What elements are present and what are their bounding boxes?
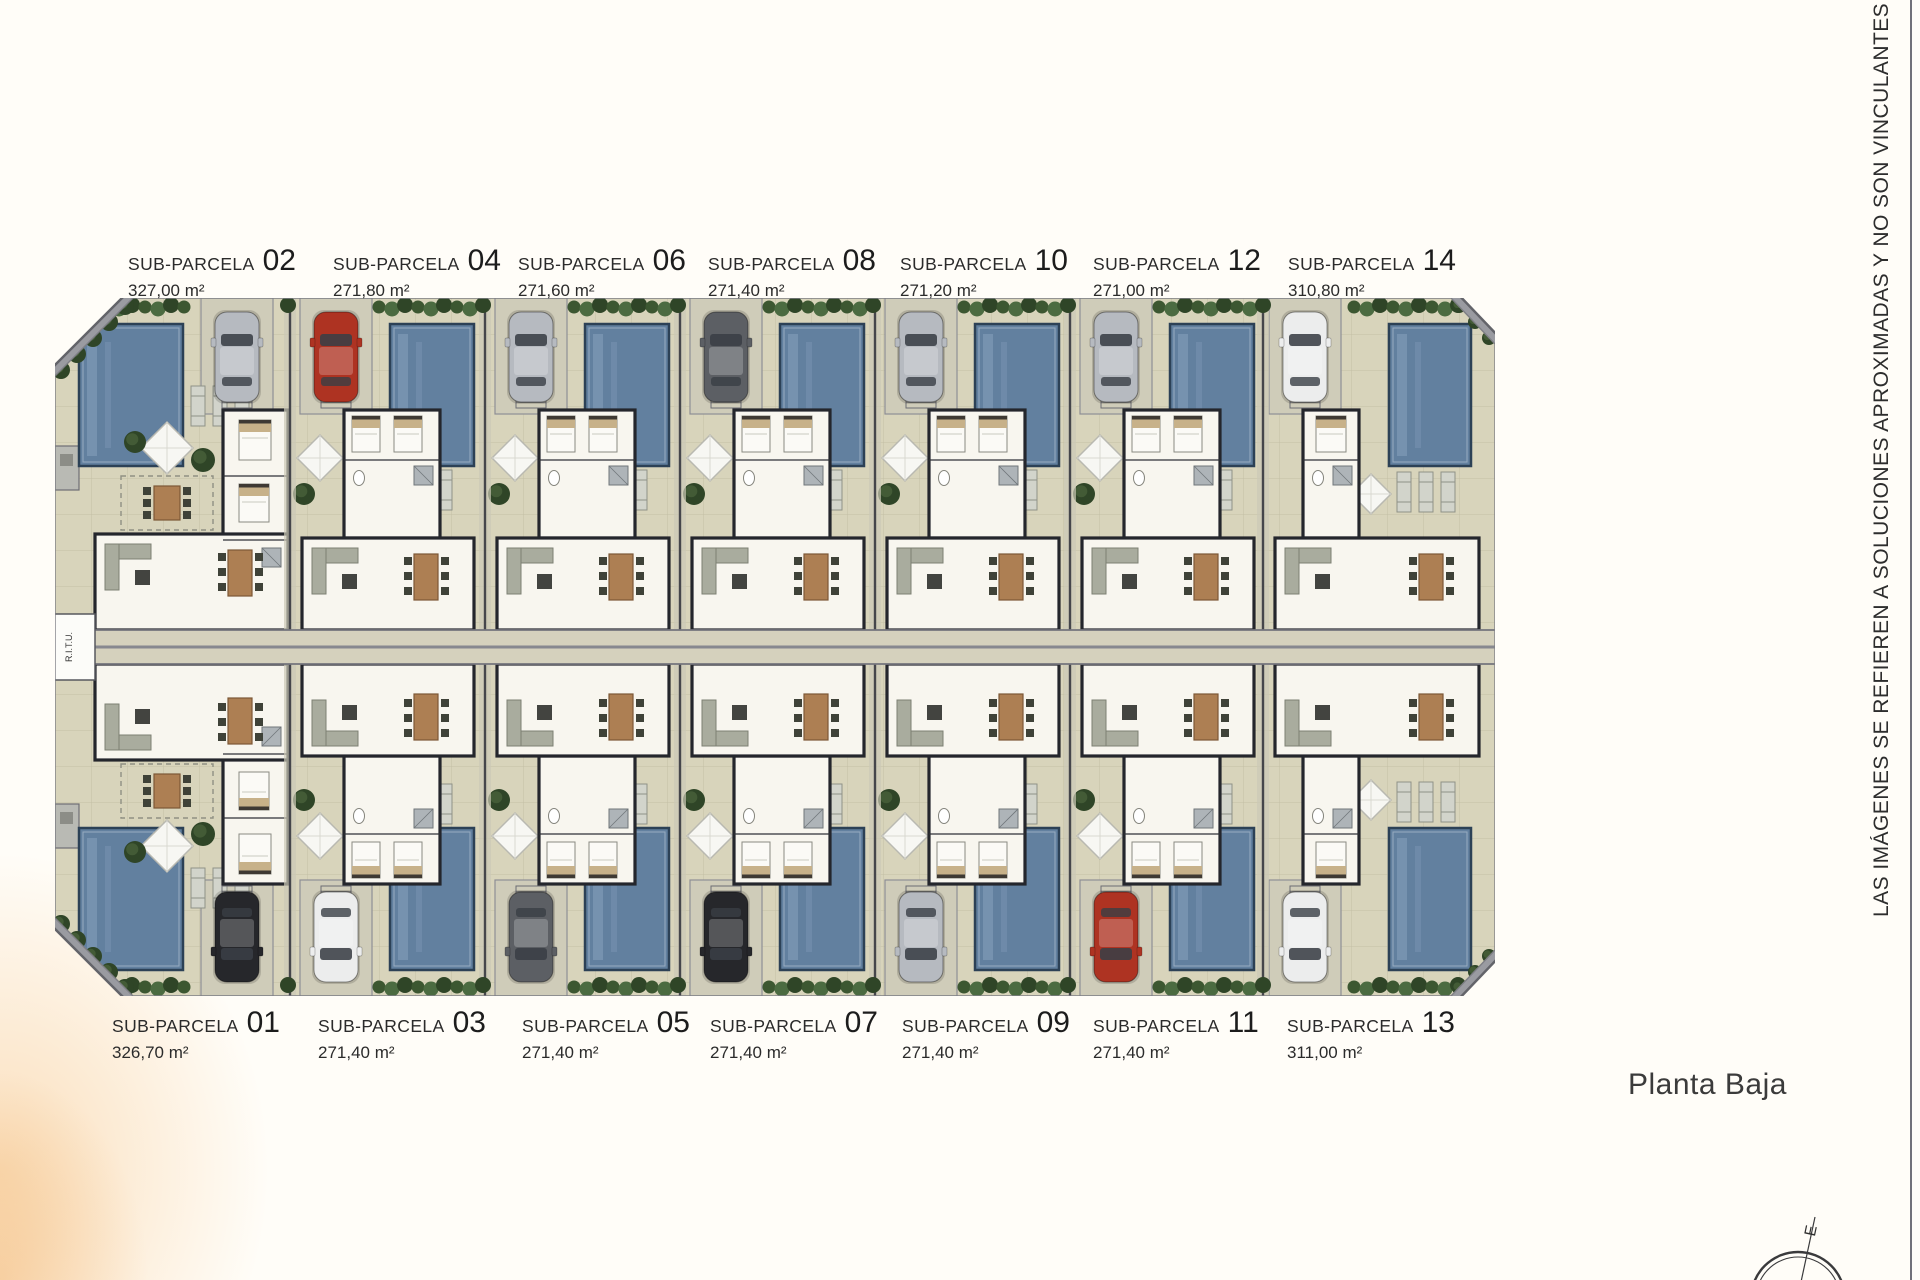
sun-lounger: [191, 386, 205, 426]
hedge-icon: [1231, 301, 1244, 314]
parcel-label-12: SUB-PARCELA12271,00 m²: [1093, 246, 1261, 301]
hedge-icon: [1021, 977, 1037, 993]
sub-parcela-area: 327,00 m²: [128, 281, 296, 301]
dining-table: [999, 694, 1023, 740]
coffee-table: [1122, 705, 1137, 720]
dining-table: [228, 698, 252, 744]
coffee-table: [927, 705, 942, 720]
toilet-icon: [744, 471, 755, 486]
toilet-icon: [744, 809, 755, 824]
coffee-table: [537, 705, 552, 720]
dining-table: [999, 554, 1023, 600]
hedge-icon: [85, 298, 101, 313]
sub-parcela-area: 271,40 m²: [1093, 1043, 1259, 1063]
hedge-icon: [631, 977, 647, 993]
car-icon: [700, 890, 752, 984]
toilet-icon: [1134, 471, 1145, 486]
toilet-icon: [354, 471, 365, 486]
hedge-icon: [163, 977, 179, 993]
hedge-icon: [280, 977, 296, 993]
sub-parcela-name: SUB-PARCELA: [1093, 254, 1220, 274]
sub-parcela-area: 271,40 m²: [710, 1043, 878, 1063]
coffee-table: [927, 574, 942, 589]
parcel-label-02: SUB-PARCELA02327,00 m²: [128, 246, 296, 301]
dining-table: [804, 554, 828, 600]
hedge-icon: [802, 981, 815, 994]
hedge-icon: [61, 981, 74, 994]
hedge-icon: [1255, 977, 1271, 993]
hedge-icon: [1192, 981, 1205, 994]
dining-table: [1419, 694, 1443, 740]
car-icon: [505, 890, 557, 984]
sub-parcela-number: 12: [1228, 244, 1261, 277]
hedge-icon: [1387, 981, 1400, 994]
hedge-icon: [1153, 981, 1166, 994]
toilet-icon: [549, 809, 560, 824]
parcel-label-06: SUB-PARCELA06271,60 m²: [518, 246, 686, 301]
parcel-label-13: SUB-PARCELA13311,00 m²: [1287, 1008, 1455, 1063]
toilet-icon: [939, 809, 950, 824]
disclaimer-text: LAS IMÁGENES SE REFIEREN A SOLUCIONES AP…: [1870, 0, 1894, 917]
parcel-label-01: SUB-PARCELA01326,70 m²: [112, 1008, 280, 1063]
hedge-icon: [997, 301, 1010, 314]
sun-lounger: [1397, 782, 1411, 822]
sub-parcela-name: SUB-PARCELA: [128, 254, 255, 274]
coffee-table: [1315, 574, 1330, 589]
car-icon: [1279, 310, 1331, 404]
car-icon: [310, 310, 362, 404]
hedge-icon: [139, 981, 152, 994]
ritu-label: R.I.T.U.: [64, 632, 74, 662]
hedge-icon: [373, 981, 386, 994]
toilet-icon: [1313, 471, 1324, 486]
hedge-icon: [646, 981, 659, 994]
hedge-icon: [436, 977, 452, 993]
sub-parcela-name: SUB-PARCELA: [112, 1016, 239, 1036]
hedge-icon: [412, 301, 425, 314]
hedge-icon: [592, 977, 608, 993]
sub-parcela-name: SUB-PARCELA: [522, 1016, 649, 1036]
sub-parcela-number: 01: [247, 1006, 280, 1039]
hedge-icon: [1153, 301, 1166, 314]
sub-parcela-area: 271,80 m²: [333, 281, 501, 301]
sub-parcela-name: SUB-PARCELA: [1287, 1016, 1414, 1036]
car-icon: [211, 890, 263, 984]
parcel-label-09: SUB-PARCELA09271,40 m²: [902, 1008, 1070, 1063]
coffee-table: [537, 574, 552, 589]
utility-cabinet: [55, 804, 79, 848]
parcel-unit-01: [79, 664, 288, 996]
hedge-icon: [61, 301, 74, 314]
sub-parcela-number: 06: [653, 244, 686, 277]
hedge-icon: [1348, 301, 1361, 314]
sub-parcela-name: SUB-PARCELA: [710, 1016, 837, 1036]
sub-parcela-number: 14: [1423, 244, 1456, 277]
dining-table: [609, 554, 633, 600]
sub-parcela-number: 04: [468, 244, 501, 277]
sun-lounger: [191, 868, 205, 908]
toilet-icon: [1134, 809, 1145, 824]
hedge-icon: [373, 301, 386, 314]
hedge-icon: [958, 981, 971, 994]
hedge-icon: [958, 301, 971, 314]
sub-parcela-number: 11: [1228, 1006, 1259, 1039]
car-icon: [211, 310, 263, 404]
ritu-box: [55, 614, 95, 680]
hedge-icon: [568, 981, 581, 994]
sub-parcela-number: 02: [263, 244, 296, 277]
sun-lounger: [1419, 472, 1433, 512]
sun-lounger: [1397, 472, 1411, 512]
sub-parcela-name: SUB-PARCELA: [333, 254, 460, 274]
dining-table: [609, 694, 633, 740]
hedge-icon: [475, 977, 491, 993]
hedge-icon: [787, 977, 803, 993]
sub-parcela-name: SUB-PARCELA: [900, 254, 1027, 274]
hedge-icon: [763, 301, 776, 314]
dining-table: [1194, 694, 1218, 740]
hedge-icon: [1426, 301, 1439, 314]
car-icon: [1279, 890, 1331, 984]
sub-parcela-name: SUB-PARCELA: [518, 254, 645, 274]
sub-parcela-name: SUB-PARCELA: [1288, 254, 1415, 274]
toilet-icon: [549, 471, 560, 486]
utility-cabinet: [55, 446, 79, 490]
site-plan: R.I.T.U.: [55, 298, 1495, 996]
hedge-icon: [763, 981, 776, 994]
page-corner-glow-strong: [0, 1070, 150, 1280]
sub-parcela-name: SUB-PARCELA: [1093, 1016, 1220, 1036]
parcel-label-07: SUB-PARCELA07271,40 m²: [710, 1008, 878, 1063]
parcel-label-10: SUB-PARCELA10271,20 m²: [900, 246, 1068, 301]
toilet-icon: [939, 471, 950, 486]
sub-parcela-name: SUB-PARCELA: [902, 1016, 1029, 1036]
sub-parcela-area: 311,00 m²: [1287, 1043, 1455, 1063]
sub-parcela-area: 271,40 m²: [318, 1043, 486, 1063]
car-icon: [505, 310, 557, 404]
sub-parcela-area: 271,40 m²: [522, 1043, 690, 1063]
hedge-icon: [841, 981, 854, 994]
parcel-label-03: SUB-PARCELA03271,40 m²: [318, 1008, 486, 1063]
coffee-table: [135, 570, 150, 585]
sub-parcela-area: 271,60 m²: [518, 281, 686, 301]
sub-parcela-area: 271,40 m²: [902, 1043, 1070, 1063]
sub-parcela-name: SUB-PARCELA: [708, 254, 835, 274]
hedge-icon: [1060, 977, 1076, 993]
hedge-icon: [1036, 981, 1049, 994]
hedge-icon: [607, 301, 620, 314]
hedge-icon: [1411, 977, 1427, 993]
sub-parcela-area: 310,80 m²: [1288, 281, 1456, 301]
hedge-icon: [412, 981, 425, 994]
hedge-icon: [802, 301, 815, 314]
toilet-icon: [1313, 809, 1324, 824]
hedge-icon: [73, 982, 88, 997]
hedge-icon: [826, 977, 842, 993]
dining-table: [414, 694, 438, 740]
coffee-table: [135, 709, 150, 724]
sub-parcela-number: 08: [843, 244, 876, 277]
sub-parcela-area: 271,20 m²: [900, 281, 1068, 301]
hedge-icon: [1372, 977, 1388, 993]
coffee-table: [732, 705, 747, 720]
hedge-icon: [646, 301, 659, 314]
sub-parcela-number: 09: [1037, 1006, 1070, 1039]
outdoor-table: [154, 774, 180, 808]
hedge-icon: [982, 977, 998, 993]
hedge-icon: [1192, 301, 1205, 314]
hedge-icon: [1216, 977, 1232, 993]
sub-parcela-area: 271,00 m²: [1093, 281, 1261, 301]
sun-lounger: [1441, 782, 1455, 822]
hedge-icon: [178, 981, 191, 994]
sub-parcela-area: 271,40 m²: [708, 281, 876, 301]
parcel-label-04: SUB-PARCELA04271,80 m²: [333, 246, 501, 301]
sub-parcela-name: SUB-PARCELA: [318, 1016, 445, 1036]
sub-parcela-number: 05: [657, 1006, 690, 1039]
hedge-icon: [841, 301, 854, 314]
hedge-icon: [451, 301, 464, 314]
hedge-icon: [1426, 981, 1439, 994]
parcel-label-05: SUB-PARCELA05271,40 m²: [522, 1008, 690, 1063]
car-icon: [700, 310, 752, 404]
sub-parcela-area: 326,70 m²: [112, 1043, 280, 1063]
sun-lounger: [1441, 472, 1455, 512]
hedge-icon: [670, 977, 686, 993]
hedge-icon: [397, 977, 413, 993]
coffee-table: [342, 705, 357, 720]
outdoor-table: [154, 486, 180, 520]
dining-table: [414, 554, 438, 600]
hedge-icon: [139, 301, 152, 314]
sub-parcela-number: 10: [1035, 244, 1068, 277]
sub-parcela-number: 03: [453, 1006, 486, 1039]
sub-parcela-number: 07: [845, 1006, 878, 1039]
parcel-label-11: SUB-PARCELA11271,40 m²: [1093, 1008, 1259, 1063]
compass-east-label: E: [1802, 1224, 1821, 1238]
hedge-icon: [1036, 301, 1049, 314]
car-icon: [310, 890, 362, 984]
hedge-icon: [1477, 982, 1492, 997]
hedge-icon: [865, 977, 881, 993]
dining-table: [1419, 554, 1443, 600]
coffee-table: [342, 574, 357, 589]
hedge-icon: [607, 981, 620, 994]
dining-table: [1194, 554, 1218, 600]
toilet-icon: [354, 809, 365, 824]
hedge-icon: [451, 981, 464, 994]
sun-lounger: [1419, 782, 1433, 822]
car-icon: [895, 310, 947, 404]
compass-icon: E: [1718, 1203, 1894, 1280]
hedge-icon: [1348, 981, 1361, 994]
dining-table: [228, 550, 252, 596]
hedge-icon: [1387, 301, 1400, 314]
hedge-icon: [1177, 977, 1193, 993]
car-icon: [1090, 890, 1142, 984]
parcel-label-14: SUB-PARCELA14310,80 m²: [1288, 246, 1456, 301]
hedge-icon: [997, 981, 1010, 994]
coffee-table: [1315, 705, 1330, 720]
border-line: [1910, 0, 1912, 1280]
car-icon: [1090, 310, 1142, 404]
hedge-icon: [568, 301, 581, 314]
hedge-icon: [85, 977, 101, 993]
car-icon: [895, 890, 947, 984]
hedge-icon: [178, 301, 191, 314]
parcel-label-08: SUB-PARCELA08271,40 m²: [708, 246, 876, 301]
hedge-icon: [73, 302, 88, 317]
coffee-table: [1122, 574, 1137, 589]
sub-parcela-number: 13: [1422, 1006, 1455, 1039]
dining-table: [804, 694, 828, 740]
parcel-unit-02: [79, 298, 288, 630]
coffee-table: [732, 574, 747, 589]
plan-caption: Planta Baja: [1628, 1068, 1787, 1102]
hedge-icon: [1231, 981, 1244, 994]
